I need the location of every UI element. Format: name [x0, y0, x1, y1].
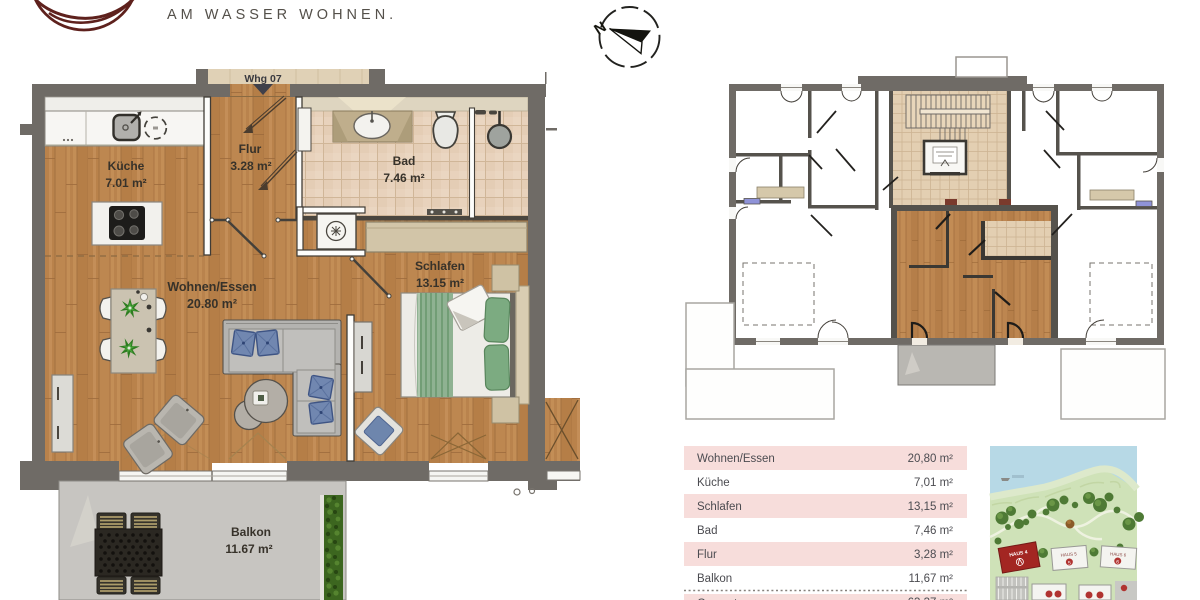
svg-text:Wohnen/Essen: Wohnen/Essen	[167, 280, 256, 294]
svg-text:11.67 m²: 11.67 m²	[225, 542, 272, 556]
svg-text:11,67 m²: 11,67 m²	[908, 573, 953, 585]
svg-text:AM WASSER WOHNEN.: AM WASSER WOHNEN.	[167, 7, 397, 23]
svg-text:3,28 m²: 3,28 m²	[914, 549, 953, 561]
svg-text:7.01 m²: 7.01 m²	[105, 176, 146, 190]
svg-text:Flur: Flur	[239, 142, 262, 156]
svg-text:Balkon: Balkon	[231, 525, 271, 539]
svg-text:3.28 m²: 3.28 m²	[230, 159, 271, 173]
svg-text:13,15 m²: 13,15 m²	[908, 501, 954, 513]
svg-text:7,01 m²: 7,01 m²	[914, 477, 953, 489]
svg-text:Schlafen: Schlafen	[415, 259, 465, 273]
svg-text:20,80 m²: 20,80 m²	[908, 453, 954, 465]
svg-text:Balkon: Balkon	[697, 573, 732, 585]
svg-text:Wohnen/Essen: Wohnen/Essen	[697, 453, 775, 465]
svg-text:Schlafen: Schlafen	[697, 501, 742, 513]
svg-text:Küche: Küche	[697, 477, 730, 489]
svg-text:Whg 07: Whg 07	[244, 73, 281, 85]
svg-text:Flur: Flur	[697, 549, 717, 561]
svg-text:Küche: Küche	[108, 159, 145, 173]
svg-text:7,46 m²: 7,46 m²	[914, 525, 953, 537]
svg-text:Bad: Bad	[393, 154, 416, 168]
svg-text:13.15 m²: 13.15 m²	[416, 276, 464, 290]
svg-text:7.46 m²: 7.46 m²	[383, 171, 424, 185]
svg-text:Bad: Bad	[697, 525, 717, 537]
svg-text:20.80 m²: 20.80 m²	[187, 297, 237, 311]
